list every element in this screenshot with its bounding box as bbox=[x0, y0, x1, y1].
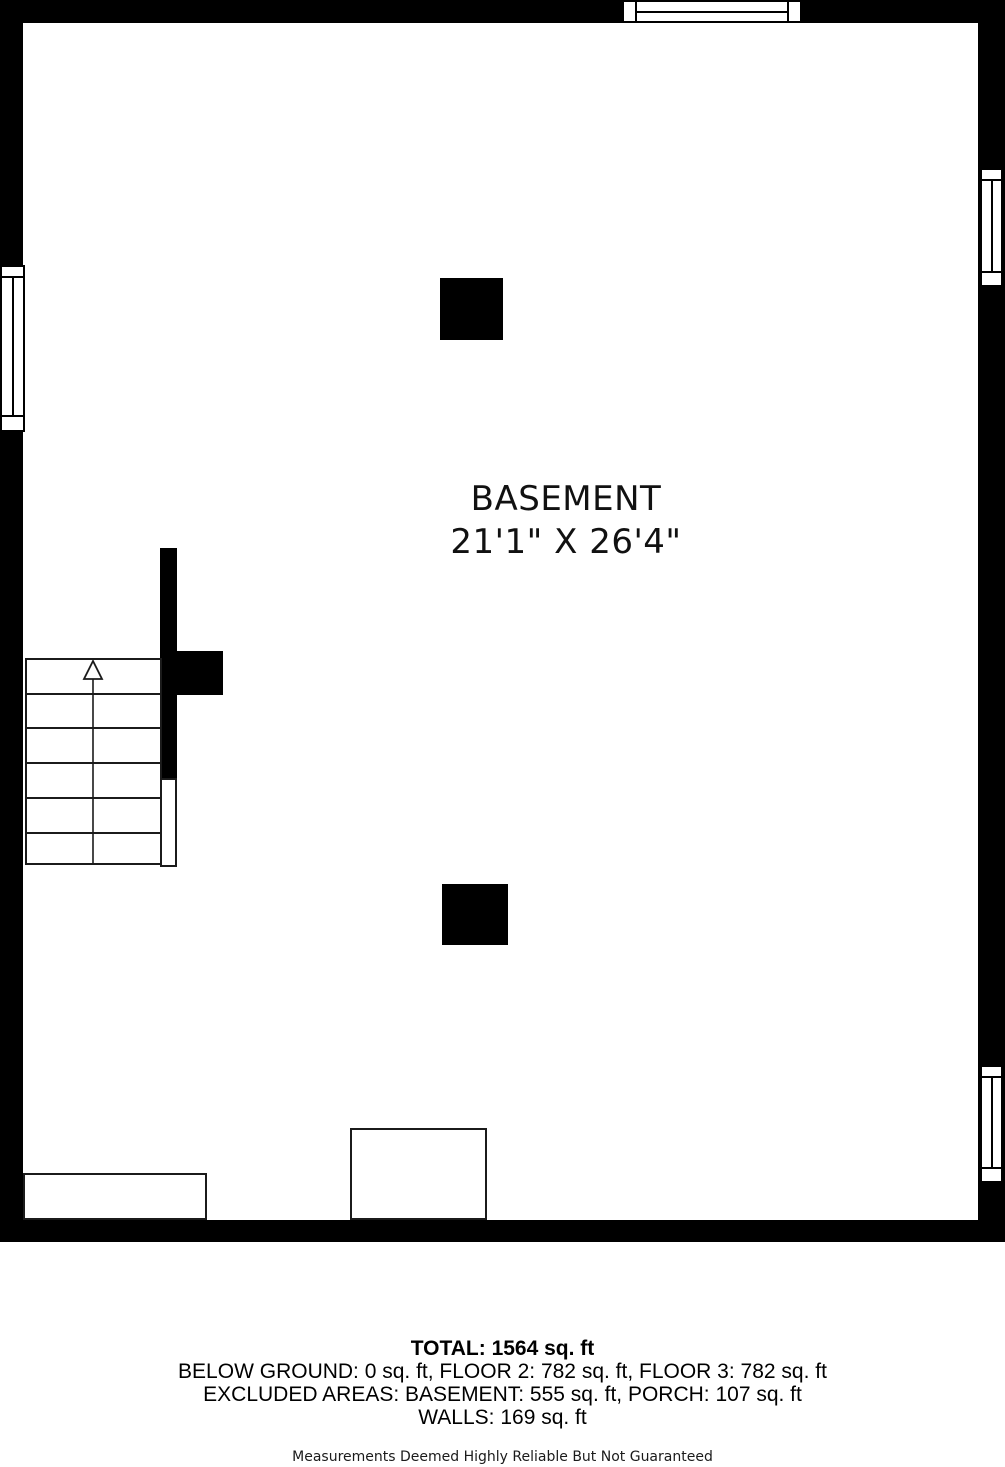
support-post-lower bbox=[442, 884, 508, 945]
window-glass-line bbox=[12, 278, 14, 415]
stair-direction-arrow-icon bbox=[27, 660, 160, 863]
window-cap-line bbox=[982, 1167, 1001, 1169]
area-summary: TOTAL: 1564 sq. ft BELOW GROUND: 0 sq. f… bbox=[0, 1337, 1005, 1429]
window-glass-line bbox=[991, 181, 993, 271]
stair-wall-return bbox=[177, 651, 223, 695]
fixture-bottom-left bbox=[23, 1173, 207, 1220]
window-cap-line bbox=[2, 415, 23, 417]
basement-floor-plan: BASEMENT 21'1" X 26'4" bbox=[0, 0, 1005, 1242]
excluded-areas-line: EXCLUDED AREAS: BASEMENT: 555 sq. ft, PO… bbox=[0, 1383, 1005, 1406]
fixture-bottom-center bbox=[350, 1128, 487, 1220]
window-left-icon bbox=[0, 265, 25, 432]
stair-wall bbox=[160, 548, 177, 778]
window-glass-line bbox=[991, 1078, 993, 1167]
wall-top bbox=[0, 0, 1005, 23]
area-breakdown-line: BELOW GROUND: 0 sq. ft, FLOOR 2: 782 sq.… bbox=[0, 1360, 1005, 1383]
window-top-icon bbox=[622, 0, 802, 23]
stair-railing bbox=[160, 778, 177, 867]
support-post-upper bbox=[440, 278, 503, 340]
wall-left bbox=[0, 0, 23, 1242]
window-right-lower-icon bbox=[980, 1065, 1003, 1183]
staircase bbox=[25, 658, 162, 865]
window-cap-line bbox=[982, 271, 1001, 273]
wall-bottom bbox=[0, 1220, 1005, 1242]
room-dimensions: 21'1" X 26'4" bbox=[366, 521, 766, 564]
window-cap-line bbox=[787, 2, 789, 21]
walls-area-line: WALLS: 169 sq. ft bbox=[0, 1406, 1005, 1429]
room-label: BASEMENT 21'1" X 26'4" bbox=[366, 478, 766, 564]
window-glass-line bbox=[637, 11, 787, 13]
window-right-upper-icon bbox=[980, 168, 1003, 287]
room-name: BASEMENT bbox=[366, 478, 766, 521]
disclaimer-text: Measurements Deemed Highly Reliable But … bbox=[0, 1448, 1005, 1466]
total-area-text: TOTAL: 1564 sq. ft bbox=[0, 1337, 1005, 1360]
